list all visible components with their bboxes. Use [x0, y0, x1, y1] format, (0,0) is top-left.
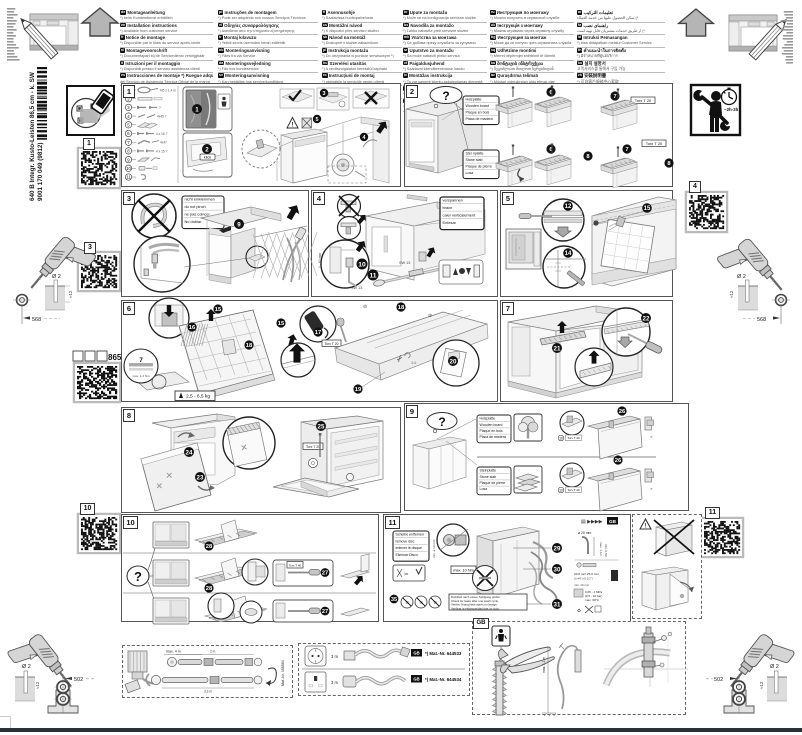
svg-text:nicht einklemmen: nicht einklemmen [185, 197, 215, 202]
svg-text:27: 27 [322, 570, 328, 576]
svg-text:27: 27 [322, 609, 328, 615]
svg-text:No doblar: No doblar [185, 219, 203, 224]
svg-text:4x47: 4x47 [160, 141, 167, 145]
svg-text:Mat.-Nr. 358584: Mat.-Nr. 358584 [281, 660, 285, 686]
svg-text:▤ ▶▶▶▶: ▤ ▶▶▶▶ [581, 519, 603, 525]
svg-text:GB: GB [413, 677, 419, 682]
svg-text:10: 10 [126, 166, 131, 171]
svg-text:502: 502 [714, 677, 723, 683]
svg-text:Torx T 20: Torx T 20 [567, 436, 580, 440]
svg-text:♻: ♻ [577, 608, 582, 613]
svg-text:Plaque de pierre: Plaque de pierre [480, 481, 506, 485]
svg-text:568: 568 [757, 317, 766, 323]
svg-text:Stone slab: Stone slab [480, 475, 497, 479]
svg-text:Plaque en bois: Plaque en bois [480, 429, 503, 433]
svg-text:10: 10 [559, 437, 563, 441]
svg-text:✂: ✂ [404, 572, 409, 578]
svg-text:Holzplatte: Holzplatte [466, 98, 482, 102]
svg-text:7: 7 [139, 357, 143, 364]
svg-text:!: ! [291, 122, 293, 129]
svg-text:28: 28 [206, 586, 213, 592]
svg-text:Verificar la estanqueidad tras: Verificar la estanqueidad tras un ciclo. [451, 606, 500, 610]
svg-text:Ø 2: Ø 2 [770, 664, 779, 670]
svg-text:11: 11 [126, 175, 131, 180]
svg-text:≈12: ≈12 [759, 681, 764, 689]
svg-text:20: 20 [450, 358, 457, 365]
svg-text:2 m: 2 m [210, 650, 216, 654]
svg-text:26: 26 [615, 458, 622, 464]
svg-text:4: 4 [363, 135, 366, 141]
svg-text:Placa de madera: Placa de madera [480, 435, 507, 439]
svg-text:Steinplatte: Steinplatte [480, 469, 497, 473]
svg-text:14: 14 [565, 251, 572, 257]
svg-text:28: 28 [206, 544, 213, 550]
svg-text:Stone slab: Stone slab [466, 158, 483, 162]
svg-text:20.0 mm 25.0 mm: 20.0 mm 25.0 mm [574, 572, 599, 576]
svg-text:verspannen: verspannen [443, 198, 463, 203]
svg-text:↕: ↕ [519, 246, 521, 250]
svg-text:18: 18 [398, 305, 405, 311]
svg-text:remove disc: remove disc [396, 539, 415, 543]
svg-text:Plaque en bois: Plaque en bois [466, 110, 490, 114]
svg-text:?: ? [442, 89, 449, 103]
svg-text:Holzplatte: Holzplatte [480, 417, 496, 421]
svg-text:0 - 60 mm: 0 - 60 mm [318, 253, 322, 268]
svg-text:5: 5 [316, 117, 319, 123]
svg-text:15: 15 [278, 321, 285, 327]
svg-text:Ø 2: Ø 2 [22, 664, 31, 670]
svg-text:~2h-3h: ~2h-3h [724, 107, 739, 112]
svg-text:4x45 ?: 4x45 ? [157, 115, 167, 119]
svg-text:865: 865 [108, 353, 122, 362]
svg-text:Torx T 20: Torx T 20 [324, 342, 338, 346]
svg-text:7: 7 [613, 94, 616, 100]
svg-text:min. ø 10 mm: min. ø 10 mm [432, 539, 436, 558]
svg-text:klick: klick [204, 156, 211, 160]
svg-text:caler verticalement: caler verticalement [443, 212, 477, 217]
svg-text:max. 1,2 Nm: max. 1,2 Nm [132, 374, 150, 378]
svg-text:12: 12 [565, 204, 572, 210]
svg-text:Torx T 20: Torx T 20 [567, 488, 580, 492]
svg-text:1: 1 [195, 106, 199, 113]
svg-text:Losa: Losa [466, 171, 474, 175]
svg-text:Torx T 20: Torx T 20 [646, 141, 663, 146]
svg-text:23: 23 [197, 474, 204, 481]
svg-text:①②: ①② [411, 361, 417, 365]
svg-text:16: 16 [189, 325, 196, 331]
svg-text:max. 1,1m: max. 1,1m [599, 542, 603, 557]
svg-text:21: 21 [554, 345, 561, 352]
svg-text:max. 60°C: max. 60°C [585, 598, 600, 602]
svg-text:Ø 2: Ø 2 [737, 274, 746, 280]
svg-text:10: 10 [358, 261, 366, 268]
svg-text:22: 22 [643, 315, 650, 322]
svg-text:2,5 - 6,5 kg: 2,5 - 6,5 kg [186, 394, 210, 400]
svg-text:25: 25 [318, 423, 325, 430]
svg-text:*) Mat.-Nr. 644534: *) Mat.-Nr. 644534 [425, 677, 462, 682]
svg-text:⊘: ⊘ [363, 304, 367, 310]
svg-text:?: ? [159, 106, 161, 110]
svg-text:do not pinch: do not pinch [185, 204, 206, 209]
svg-text:min. 0,5m: min. 0,5m [604, 544, 608, 558]
svg-text:29: 29 [554, 545, 561, 552]
svg-text:24: 24 [186, 449, 193, 456]
svg-text:brace: brace [443, 205, 453, 210]
svg-text:Eliminar Disco: Eliminar Disco [396, 553, 418, 557]
svg-text:*) Mat.-Nr. 644533: *) Mat.-Nr. 644533 [425, 651, 462, 656]
svg-text:↺: ↺ [650, 487, 653, 491]
svg-text:17: 17 [315, 330, 321, 336]
svg-text:(0.44") (0.1/2"): (0.44") (0.1/2") [574, 577, 593, 581]
svg-text:502: 502 [74, 677, 83, 683]
svg-text:Torx T 20: Torx T 20 [635, 98, 652, 103]
svg-text:3,3 m: 3,3 m [204, 690, 212, 694]
svg-text:18: 18 [246, 343, 253, 349]
svg-text:Torx T 40: Torx T 40 [289, 563, 302, 567]
svg-text:Losa: Losa [480, 487, 488, 491]
svg-text:15: 15 [215, 307, 222, 313]
svg-text:Placa de madera: Placa de madera [466, 117, 493, 121]
svg-text:SW 13: SW 13 [399, 261, 410, 265]
svg-text:15: 15 [644, 206, 651, 212]
svg-text:min. 10 mm: min. 10 mm [574, 583, 590, 587]
svg-text:≈12: ≈12 [35, 681, 40, 689]
svg-text:max. 10 Nm: max. 10 Nm [453, 569, 473, 573]
svg-text:≈12: ≈12 [729, 290, 734, 298]
svg-text:30: 30 [554, 566, 561, 573]
svg-text:3 m: 3 m [331, 680, 338, 685]
svg-text:4 x 15 ?: 4 x 15 ? [156, 132, 168, 136]
svg-text:35: 35 [391, 597, 397, 603]
svg-text:GB: GB [609, 519, 617, 524]
svg-text:⊘: ⊘ [428, 313, 432, 319]
svg-text:2: 2 [205, 146, 209, 153]
svg-text:Wooden board: Wooden board [480, 423, 503, 427]
svg-text:Wooden board: Wooden board [466, 104, 490, 108]
svg-text:4 x 15 ?: 4 x 15 ? [156, 149, 168, 153]
svg-text:7: 7 [625, 147, 628, 153]
svg-text:!: ! [645, 524, 647, 530]
svg-text:max. 1,1 m: max. 1,1 m [542, 656, 546, 673]
svg-text:568: 568 [32, 317, 41, 323]
svg-text:≈12: ≈12 [68, 290, 73, 298]
svg-text:enlever le disque: enlever le disque [396, 546, 423, 550]
svg-text:Plaque de pierre: Plaque de pierre [466, 164, 492, 168]
svg-text:31: 31 [554, 601, 561, 608]
svg-text:ne pas coincer: ne pas coincer [185, 211, 211, 216]
svg-text:Torx T 20: Torx T 20 [306, 445, 320, 449]
svg-text:SW 13: SW 13 [351, 286, 362, 290]
svg-text:Stei nplatte: Stei nplatte [466, 152, 484, 156]
svg-text:3 m: 3 m [331, 654, 338, 659]
svg-text:GB: GB [413, 651, 419, 656]
svg-text:Entesar: Entesar [443, 220, 457, 225]
svg-text:Ø 2: Ø 2 [52, 274, 61, 280]
svg-text:↺: ↺ [650, 435, 653, 439]
svg-text:26: 26 [619, 409, 626, 415]
svg-text:11: 11 [369, 272, 376, 279]
svg-text:?: ? [438, 415, 445, 429]
svg-text:M5 x 1,4 m: M5 x 1,4 m [160, 89, 176, 93]
svg-text:ø 20 mm: ø 20 mm [578, 531, 592, 535]
svg-text:max. 4 m: max. 4 m [166, 650, 181, 654]
svg-text:3: 3 [323, 91, 326, 97]
svg-text:?: ? [134, 569, 142, 584]
svg-text:Scheibe entfernen: Scheibe entfernen [396, 533, 424, 537]
svg-text:19: 19 [355, 387, 362, 393]
svg-text:9: 9 [237, 221, 241, 228]
svg-text:10: 10 [559, 489, 563, 493]
